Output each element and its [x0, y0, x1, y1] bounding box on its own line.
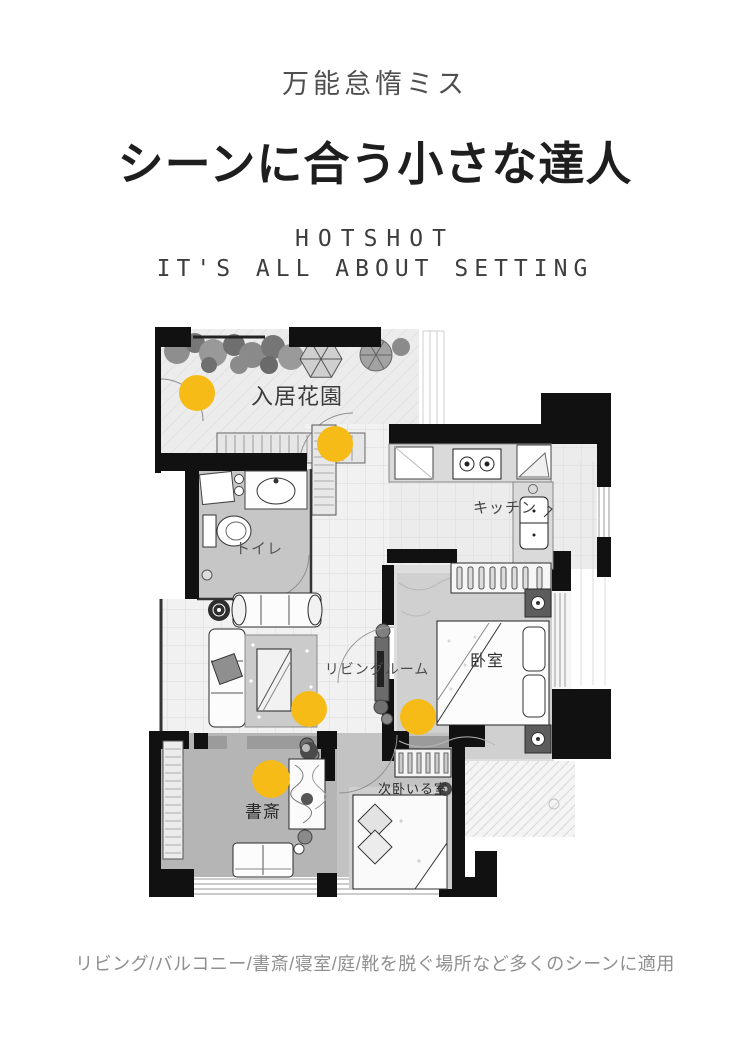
plant-icon — [374, 700, 388, 714]
pillow — [523, 675, 545, 717]
room-label-kitchen: キッチン — [473, 497, 537, 518]
plant-icon — [376, 624, 390, 638]
product-subtitle: 万能怠惰ミス — [0, 62, 750, 101]
marker-bedroom-door — [400, 699, 436, 735]
marker-entrance — [317, 426, 353, 462]
floorplan-image: 入居花園 キッチン トイレ リビングルーム 卧室 書斎 次卧いる室 — [149, 321, 611, 901]
room-label-living: リビングルーム — [325, 659, 430, 679]
room-label-garden: 入居花園 — [251, 379, 343, 411]
room-label-study: 書斎 — [245, 798, 281, 823]
room-label-bedroom: 卧室 — [470, 647, 504, 671]
floorplan-drawing — [149, 321, 611, 901]
marker-study — [252, 760, 290, 798]
brand-tagline: IT'S ALL ABOUT SETTING — [0, 256, 750, 282]
room-label-bedroom2: 次卧いる室 — [378, 779, 448, 798]
plant-icon — [382, 714, 393, 725]
bookshelf — [163, 741, 183, 859]
pillow — [523, 627, 545, 671]
room-label-toilet: トイレ — [235, 538, 283, 559]
marker-living — [291, 691, 327, 727]
product-title: シーンに合う小さな達人 — [0, 128, 750, 194]
brand-name: HOTSHOT — [0, 226, 750, 252]
marker-garden — [179, 375, 215, 411]
promo-page: 万能怠惰ミス シーンに合う小さな達人 HOTSHOT IT'S ALL ABOU… — [0, 0, 750, 1042]
usage-caption: リビング/バルコニー/書斎/寝室/庭/靴を脱ぐ場所など多くのシーンに適用 — [0, 950, 750, 976]
